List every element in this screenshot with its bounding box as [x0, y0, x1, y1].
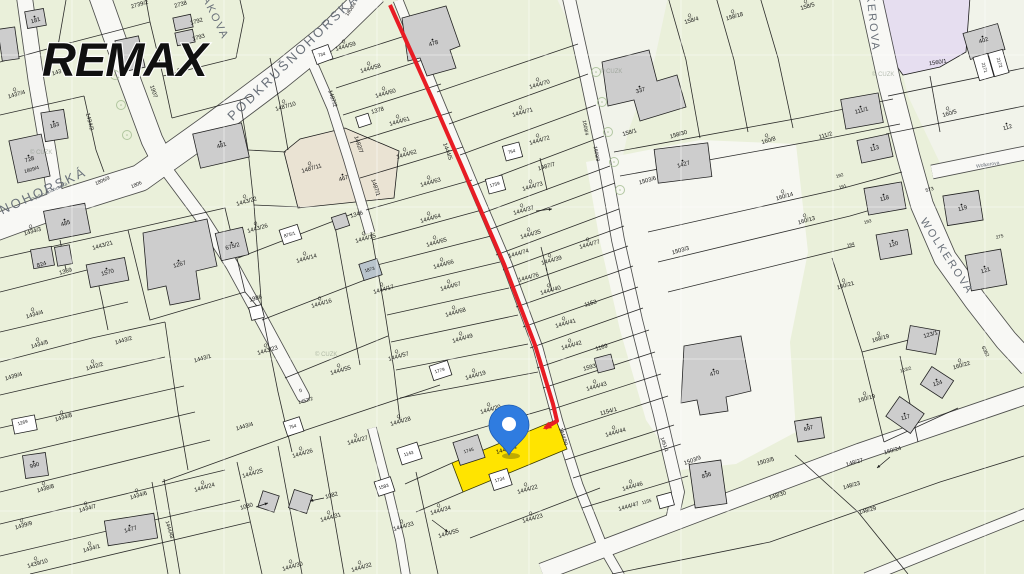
map-watermark: © ČÚZK [315, 351, 337, 358]
tree-icon [126, 134, 128, 136]
map-screenshot: 1437/4Q.1437/327372739/22738179217931811… [0, 0, 1024, 574]
building-836 [689, 460, 727, 508]
tree-icon [601, 101, 603, 103]
watermark-text: © ČÚZK [30, 149, 52, 156]
watermark-text: © ČÚZK [872, 71, 894, 78]
tree-icon [607, 131, 609, 133]
map-watermark: © ČÚZK [872, 71, 894, 78]
tree-icon [120, 104, 122, 106]
remax-logo: REMAX [42, 33, 210, 86]
pin-shadow [502, 453, 520, 459]
building-1986 [249, 305, 265, 321]
map-watermark: © ČÚZK [30, 149, 52, 156]
map-watermark: © ČÚZK [600, 68, 622, 75]
cadastral-map: 1437/4Q.1437/327372739/22738179217931811… [0, 0, 1024, 574]
watermark-text: © ČÚZK [600, 68, 622, 75]
building-1369 [54, 245, 72, 266]
tree-icon [595, 71, 597, 73]
pin-hole [502, 417, 516, 431]
tree-icon [619, 189, 621, 191]
watermark-text: © ČÚZK [315, 351, 337, 358]
tree-icon [613, 161, 615, 163]
